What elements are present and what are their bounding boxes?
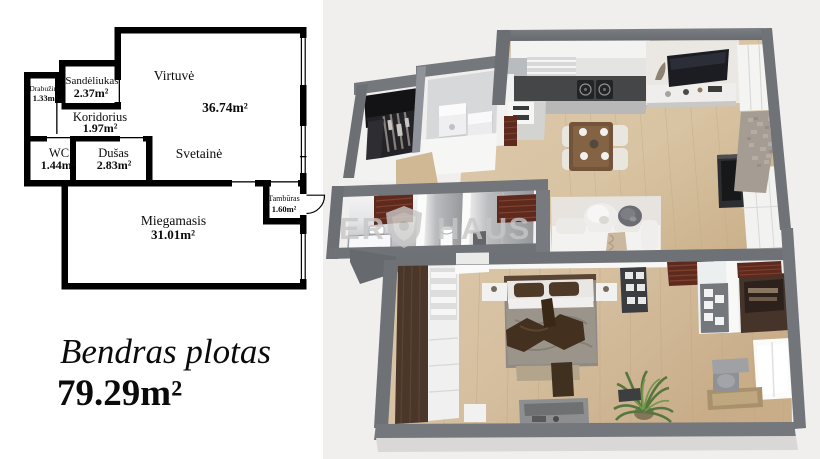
svg-text:1.97m²: 1.97m²	[83, 121, 118, 135]
svg-text:Svetainė: Svetainė	[176, 146, 223, 161]
svg-text:2.83m²: 2.83m²	[97, 158, 132, 172]
svg-text:36.74m²: 36.74m²	[202, 100, 248, 115]
svg-text:ER: ER	[339, 211, 386, 246]
svg-text:Tambūras: Tambūras	[268, 194, 299, 203]
svg-text:1.60m²: 1.60m²	[272, 204, 297, 214]
svg-text:1.33m²: 1.33m²	[33, 93, 58, 103]
svg-text:HAUS: HAUS	[437, 211, 531, 246]
svg-text:1.44m²: 1.44m²	[41, 158, 76, 172]
svg-text:31.01m²: 31.01m²	[151, 227, 195, 242]
svg-text:Miegamasis: Miegamasis	[141, 213, 206, 228]
svg-text:Drabužinė: Drabužinė	[29, 84, 61, 93]
svg-text:Bendras plotas: Bendras plotas	[60, 332, 271, 371]
svg-text:79.29m²: 79.29m²	[57, 373, 182, 414]
svg-text:Virtuvė: Virtuvė	[154, 68, 194, 83]
svg-text:2.37m²: 2.37m²	[74, 86, 109, 100]
